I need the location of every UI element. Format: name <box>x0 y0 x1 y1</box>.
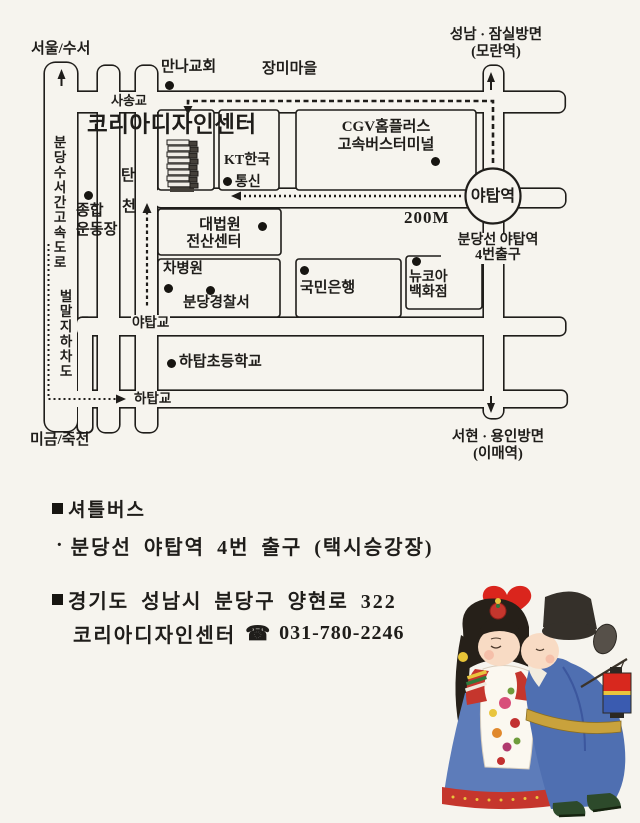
address-line: 경기도 성남시 분당구 양현로 322 <box>52 585 397 614</box>
phone-number: 031-780-2246 <box>279 622 404 645</box>
dept-store-label-line2: 백화점 <box>409 285 448 301</box>
manna-church-label: 만나교회 <box>161 59 216 76</box>
dept-store-label-line1: 뉴코아 <box>409 270 448 286</box>
item-marker: · <box>56 534 63 557</box>
shuttle-bus-heading: 셔틀버스 <box>52 495 146 522</box>
expressway-label: 분당수서간고속도로 <box>51 135 66 270</box>
kt-label-line2: 통신 <box>223 171 261 191</box>
center-name-text: 코리아디자인센터 <box>73 619 236 648</box>
police-dot <box>206 286 215 295</box>
contact-line: 코리아디자인센터 ☎ 031-780-2246 <box>73 619 404 648</box>
underpass-label: 벌말지하차도 <box>57 289 72 379</box>
square-bullet-icon <box>52 503 63 514</box>
shuttle-bus-heading-text: 셔틀버스 <box>68 495 146 522</box>
kt-label-line1: KT한국 <box>224 153 270 169</box>
bank-label: 국민은행 <box>300 280 355 297</box>
kt-label-text: 통신 <box>235 171 261 191</box>
cgv-label-line1: CGV홈플러스 <box>296 119 476 136</box>
direction-seongnam-jamsil: 성남 · 잠실방면 <box>433 27 559 43</box>
cha-hospital-label: 차병원 <box>163 261 203 277</box>
manna-church-dot <box>165 81 174 90</box>
court-dot <box>258 222 267 231</box>
direction-moran-station: (모란역) <box>433 44 559 60</box>
direction-seohyeon-yongin: 서현 · 용인방면 <box>435 429 561 445</box>
cgv-terminal-dot <box>431 157 440 166</box>
distance-label: 200M <box>404 208 450 227</box>
address-text: 경기도 성남시 분당구 양현로 322 <box>68 585 397 614</box>
police-label: 분당경찰서 <box>183 295 250 311</box>
sports-complex-label-line2: 운동장 <box>76 222 117 239</box>
shuttle-bus-item-text: 분당선 야탑역 4번 출구 (택시승강장) <box>71 531 434 560</box>
direction-imae-station: (이매역) <box>435 446 561 462</box>
yatap-station-label: 야탑역 <box>465 188 521 206</box>
school-label: 하탑초등학교 <box>179 354 262 371</box>
station-exit-label-line2: 4번출구 <box>441 248 555 264</box>
shuttle-bus-item: · 분당선 야탑역 4번 출구 (택시승강장) <box>56 531 434 560</box>
sports-complex-label-line1: 종합 <box>76 203 104 220</box>
sasong-bridge-label: 사송교 <box>111 94 147 109</box>
sports-complex-dot <box>84 191 93 200</box>
wedding-couple-illustration <box>433 575 640 823</box>
dept-store-dot <box>412 257 421 266</box>
yatap-bridge-label: 야탑교 <box>131 315 170 330</box>
kt-dot <box>223 177 232 186</box>
square-bullet-icon <box>52 594 63 605</box>
station-exit-label-line1: 분당선 야탑역 <box>441 233 555 249</box>
bank-dot <box>300 266 309 275</box>
stream-label-char2: 천 <box>122 199 136 216</box>
phone-icon: ☎ <box>245 621 270 646</box>
rose-village-label: 장미마을 <box>262 61 317 78</box>
direction-migeum-jukjeon: 미금/죽전 <box>30 432 89 449</box>
scanned-direction-map-page: 서울/수서 미금/죽전 성남 · 잠실방면 (모란역) 서현 · 용인방면 (이… <box>0 0 640 823</box>
cha-hospital-dot <box>164 284 173 293</box>
stream-label-char1: 탄 <box>121 168 135 185</box>
hatap-bridge-label: 하탑교 <box>133 391 172 406</box>
court-label-line2: 전산센터 <box>158 234 270 251</box>
bride-bead-ornament <box>458 652 468 662</box>
design-center-building-icon <box>167 140 198 192</box>
design-center-title: 코리아디자인센터 <box>87 112 257 137</box>
direction-seoul-suseo: 서울/수서 <box>31 41 90 58</box>
school-dot <box>167 359 176 368</box>
cgv-label-line2: 고속버스터미널 <box>296 137 476 154</box>
